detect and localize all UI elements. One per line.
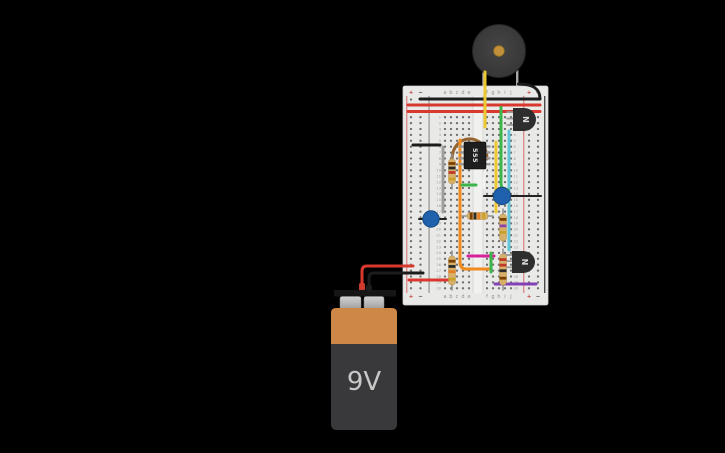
svg-text:16: 16	[514, 204, 519, 208]
battery-terminal-left	[340, 297, 361, 310]
ic-555-timer[interactable]: 555	[460, 142, 491, 169]
svg-text:18: 18	[514, 216, 519, 220]
svg-text:22: 22	[514, 239, 519, 243]
battery-terminal-right	[364, 297, 384, 310]
svg-text:15: 15	[436, 198, 441, 202]
svg-text:g: g	[491, 90, 494, 96]
svg-text:5: 5	[514, 139, 516, 143]
svg-text:c: c	[456, 294, 459, 300]
center-channel-edge-left	[473, 96, 474, 293]
svg-text:24: 24	[436, 251, 441, 255]
svg-text:+: +	[409, 294, 414, 300]
svg-text:10: 10	[514, 169, 519, 173]
svg-text:20: 20	[436, 228, 441, 232]
svg-text:g: g	[491, 294, 494, 300]
svg-text:23: 23	[436, 245, 441, 249]
svg-text:−: −	[536, 294, 541, 300]
capacitor-1[interactable]	[423, 211, 439, 227]
resistor-3[interactable]	[500, 209, 507, 246]
svg-text:+: +	[409, 90, 414, 96]
circuit-scene: 9V 1122334455667788991010111112121313141…	[0, 0, 725, 453]
svg-text:b: b	[449, 90, 452, 96]
svg-text:10: 10	[436, 169, 441, 173]
svg-text:13: 13	[436, 186, 441, 190]
svg-text:12: 12	[514, 180, 519, 184]
svg-text:3: 3	[439, 127, 441, 131]
svg-text:d: d	[461, 90, 464, 96]
svg-text:26: 26	[436, 263, 441, 267]
svg-text:16: 16	[436, 204, 441, 208]
svg-text:17: 17	[514, 210, 519, 214]
resistor-1[interactable]	[449, 154, 456, 189]
svg-text:e: e	[467, 90, 470, 96]
capacitor-2[interactable]	[493, 187, 510, 204]
svg-text:12: 12	[436, 180, 441, 184]
svg-text:−: −	[418, 90, 423, 96]
center-channel	[473, 96, 484, 293]
svg-text:30: 30	[514, 287, 519, 291]
svg-text:27: 27	[436, 269, 441, 273]
svg-text:28: 28	[436, 275, 441, 279]
svg-text:20: 20	[514, 228, 519, 232]
svg-text:2: 2	[439, 121, 441, 125]
buzzer-center-dot	[494, 46, 505, 57]
rail-black-line-right	[544, 96, 545, 293]
svg-text:14: 14	[436, 192, 441, 196]
svg-text:22: 22	[436, 239, 441, 243]
resistor-4[interactable]	[449, 251, 456, 290]
svg-text:5: 5	[439, 139, 441, 143]
rail-black-line-left	[429, 96, 430, 293]
svg-text:+: +	[527, 90, 532, 96]
svg-text:11: 11	[514, 175, 519, 179]
transistor-label: N	[521, 116, 530, 123]
svg-text:13: 13	[514, 186, 519, 190]
svg-text:7: 7	[514, 151, 516, 155]
battery-top-cap	[334, 290, 396, 297]
svg-text:h: h	[497, 90, 500, 96]
svg-text:a: a	[443, 90, 446, 96]
svg-text:h: h	[497, 294, 500, 300]
svg-text:j: j	[509, 294, 511, 300]
center-channel-edge-right	[483, 96, 484, 293]
rail-red-line-left	[406, 96, 407, 293]
svg-text:21: 21	[514, 234, 519, 238]
svg-text:a: a	[443, 294, 446, 300]
svg-text:23: 23	[514, 245, 519, 249]
battery-voltage-label: 9V	[347, 367, 382, 397]
svg-text:25: 25	[436, 257, 441, 261]
svg-text:15: 15	[514, 198, 519, 202]
svg-text:1: 1	[439, 116, 441, 120]
svg-text:+: +	[527, 294, 532, 300]
ic-555-label: 555	[471, 148, 479, 163]
svg-text:i: i	[504, 294, 505, 300]
svg-text:i: i	[504, 90, 505, 96]
svg-text:c: c	[456, 90, 459, 96]
svg-text:d: d	[461, 294, 464, 300]
battery-orange-band	[331, 308, 397, 344]
svg-text:e: e	[467, 294, 470, 300]
circuit-canvas[interactable]: 9V 1122334455667788991010111112121313141…	[0, 0, 725, 453]
resistor-5[interactable]	[500, 249, 507, 290]
svg-text:11: 11	[436, 175, 441, 179]
svg-text:b: b	[449, 294, 452, 300]
svg-text:21: 21	[436, 234, 441, 238]
svg-text:−: −	[418, 294, 423, 300]
svg-text:30: 30	[436, 287, 441, 291]
svg-text:19: 19	[514, 222, 519, 226]
svg-text:28: 28	[514, 275, 519, 279]
transistor-label: N	[520, 259, 529, 266]
svg-text:f: f	[486, 294, 488, 300]
svg-text:7: 7	[439, 151, 441, 155]
svg-text:j: j	[509, 90, 511, 96]
